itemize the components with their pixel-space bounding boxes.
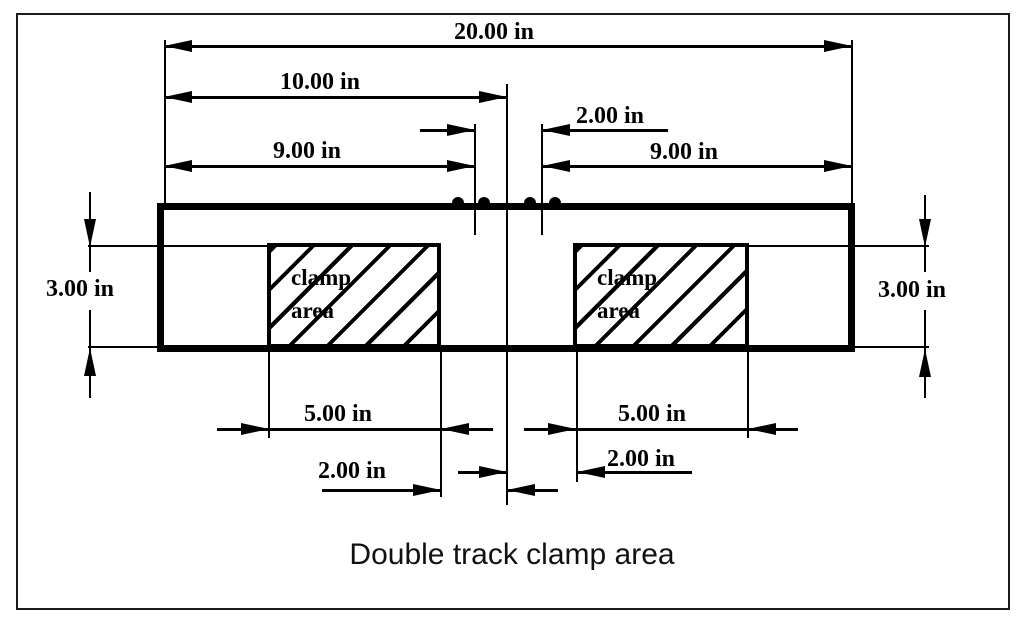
extension-line-left-bottom — [88, 346, 158, 348]
dim-label-right-span: 9.00 in — [650, 140, 718, 164]
clamp-area-right-label: clamp area — [597, 261, 657, 327]
dim-line-right-span — [542, 165, 852, 168]
track-tick-mark — [478, 197, 490, 203]
arrowhead-left-icon — [542, 160, 570, 172]
arrowhead-left-icon — [542, 124, 570, 136]
dim-line-left-span — [164, 165, 475, 168]
arrowhead-right-icon — [824, 40, 852, 52]
clamp-label-line2: area — [597, 294, 657, 327]
arrowhead-right-icon — [447, 124, 475, 136]
arrowhead-up-icon — [84, 348, 96, 376]
dim-label-center-gap: 2.00 in — [576, 104, 644, 128]
drawing-canvas: clamp area clamp area 20.00 in 10.00 in … — [0, 0, 1024, 623]
clamp-area-right: clamp area — [573, 243, 749, 348]
extension-line-gap-left — [474, 124, 476, 235]
dim-label-right-height: 3.00 in — [878, 278, 946, 302]
dim-label-left-clamp-offset: 2.00 in — [318, 459, 386, 483]
clamp-label-line1: clamp — [597, 261, 657, 294]
clamp-area-left: clamp area — [267, 243, 441, 348]
arrowhead-right-icon — [548, 423, 576, 435]
track-tick-mark — [549, 197, 561, 203]
center-line — [506, 84, 508, 505]
extension-line-left-top — [88, 245, 268, 247]
dim-label-left-height: 3.00 in — [46, 277, 114, 301]
arrowhead-left-icon — [577, 466, 605, 478]
dim-line-overall-width — [164, 45, 852, 48]
dim-label-right-clamp-offset: 2.00 in — [607, 447, 675, 471]
extension-line-gap-right — [541, 124, 543, 235]
dim-label-right-clamp-width: 5.00 in — [618, 402, 686, 426]
extension-line-right-bottom — [855, 346, 929, 348]
extension-line-left-end — [164, 40, 166, 204]
arrowhead-down-icon — [919, 219, 931, 247]
extension-line-right-top — [748, 245, 929, 247]
extension-line-right-end — [851, 40, 853, 204]
dim-label-left-span: 9.00 in — [273, 139, 341, 163]
dim-label-overall-width: 20.00 in — [454, 20, 534, 44]
drawing-title: Double track clamp area — [349, 540, 674, 570]
arrowhead-left-icon — [164, 91, 192, 103]
track-tick-mark — [524, 197, 536, 203]
dim-label-center-to-end: 10.00 in — [280, 70, 360, 94]
clamp-area-left-label: clamp area — [291, 261, 351, 327]
extension-line-clampR-left — [576, 352, 578, 482]
arrowhead-left-icon — [164, 40, 192, 52]
dim-label-left-clamp-width: 5.00 in — [304, 402, 372, 426]
track-tick-mark — [452, 197, 464, 203]
arrowhead-left-icon — [164, 160, 192, 172]
arrowhead-right-icon — [413, 484, 441, 496]
arrowhead-right-icon — [241, 423, 269, 435]
dim-line-center-to-end — [164, 96, 507, 99]
clamp-label-line1: clamp — [291, 261, 351, 294]
arrowhead-left-icon — [507, 484, 535, 496]
arrowhead-up-icon — [919, 349, 931, 377]
clamp-label-line2: area — [291, 294, 351, 327]
arrowhead-right-icon — [824, 160, 852, 172]
arrowhead-left-icon — [441, 423, 469, 435]
arrowhead-right-icon — [479, 91, 507, 103]
arrowhead-right-icon — [447, 160, 475, 172]
arrowhead-down-icon — [84, 219, 96, 247]
arrowhead-left-icon — [748, 423, 776, 435]
arrowhead-right-icon — [479, 466, 507, 478]
